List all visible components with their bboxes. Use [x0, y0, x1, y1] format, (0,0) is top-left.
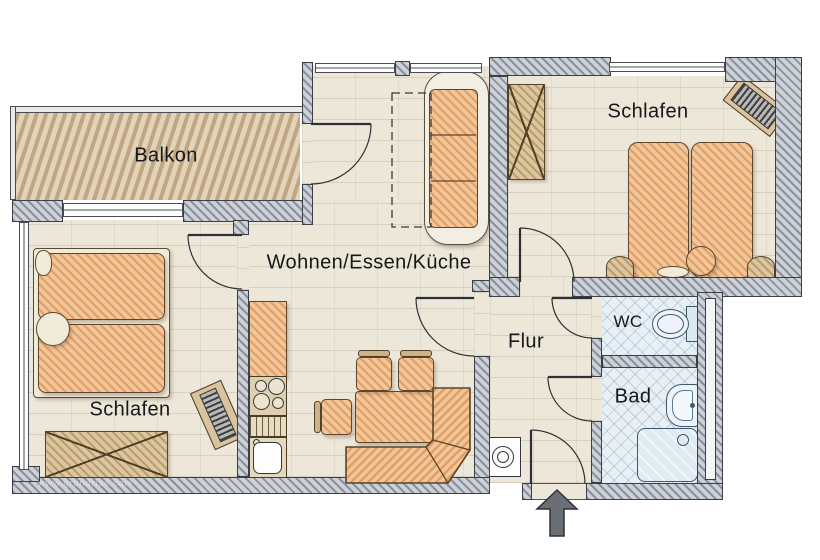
door-patch: [474, 292, 490, 356]
burner-icon: [253, 393, 270, 410]
sofa-cushions-icon: [429, 89, 478, 228]
wall: [12, 200, 63, 222]
balcony-parapet: [10, 106, 312, 113]
wall-pier: [395, 61, 410, 76]
chair-back: [400, 350, 432, 357]
wall: [489, 57, 611, 76]
room-label-bedroom-right: Schlafen: [607, 101, 688, 124]
room-label-living: Wohnen/Essen/Küche: [267, 252, 472, 275]
door-patch: [237, 235, 249, 290]
room-label-wc: WC: [613, 312, 642, 332]
mattress-icon: [628, 142, 689, 278]
window: [63, 203, 183, 217]
kitchen-counter-icon: [249, 301, 287, 377]
washbasin-icon: [666, 384, 699, 427]
toilet-icon: [652, 306, 698, 342]
pillow-icon: [35, 250, 52, 276]
window: [410, 63, 482, 73]
wardrobe-icon: [45, 431, 168, 478]
wall: [237, 290, 249, 477]
window: [315, 63, 395, 73]
sink-unit: [249, 437, 287, 478]
wall: [489, 76, 508, 282]
drainboard-icon: [249, 416, 287, 437]
entrance-threshold: [532, 483, 586, 500]
chair-seat: [321, 399, 352, 435]
wall: [586, 483, 723, 500]
wall-pier: [233, 220, 249, 235]
duct-shaft: [705, 298, 716, 480]
burner-icon: [255, 380, 267, 392]
washing-machine-icon: [486, 437, 521, 477]
door-patch: [591, 377, 602, 421]
shower-drain-icon: [677, 434, 689, 446]
wall: [591, 421, 602, 483]
room-label-bathroom: Bad: [615, 386, 652, 409]
nightstand-icon: [36, 312, 70, 346]
cushion-divider: [431, 180, 476, 182]
chair-icon: [356, 350, 392, 391]
chair-seat: [398, 357, 434, 391]
chair-back: [314, 401, 321, 433]
wall: [474, 356, 490, 483]
wall: [302, 184, 313, 225]
wardrobe-icon: [508, 84, 545, 180]
floor-plan: Balkon Schlafen Wohnen/Essen/Küche Schla…: [0, 0, 820, 560]
nightstand-icon: [747, 256, 775, 278]
shower-icon: [637, 428, 698, 482]
wall: [775, 57, 802, 297]
chair-seat: [356, 357, 392, 391]
wall: [489, 277, 520, 297]
room-label-bedroom-left: Schlafen: [89, 399, 170, 422]
chair-icon: [398, 350, 434, 391]
wall: [522, 483, 532, 500]
wall: [183, 200, 312, 222]
dining-table-icon: [355, 391, 435, 443]
chair-back: [358, 350, 390, 357]
tap-icon: [690, 403, 695, 408]
mattress-icon: [38, 253, 165, 320]
watermark: www.grundriss.com: [38, 478, 133, 488]
cushion-divider: [431, 134, 476, 136]
room-label-hallway: Flur: [508, 331, 544, 354]
room-label-balcony: Balkon: [134, 145, 198, 168]
stove-icon: [249, 376, 287, 416]
washer-door-inner: [497, 451, 509, 463]
window: [19, 222, 29, 470]
wall: [302, 62, 313, 124]
wall: [472, 280, 490, 292]
burner-icon: [268, 378, 285, 395]
door-patch: [520, 277, 572, 297]
window: [609, 62, 725, 72]
wall: [591, 338, 602, 377]
kitchen-sink-icon: [253, 442, 282, 474]
chair-icon: [314, 399, 352, 435]
burner-icon: [272, 397, 284, 409]
balcony-parapet: [10, 106, 16, 200]
toilet-bowl-inner: [657, 314, 684, 334]
nightstand-icon: [606, 256, 634, 278]
wall: [602, 355, 697, 368]
stool-icon: [686, 246, 716, 276]
wall: [572, 277, 802, 297]
door-patch: [302, 124, 313, 184]
door-patch: [591, 297, 602, 338]
